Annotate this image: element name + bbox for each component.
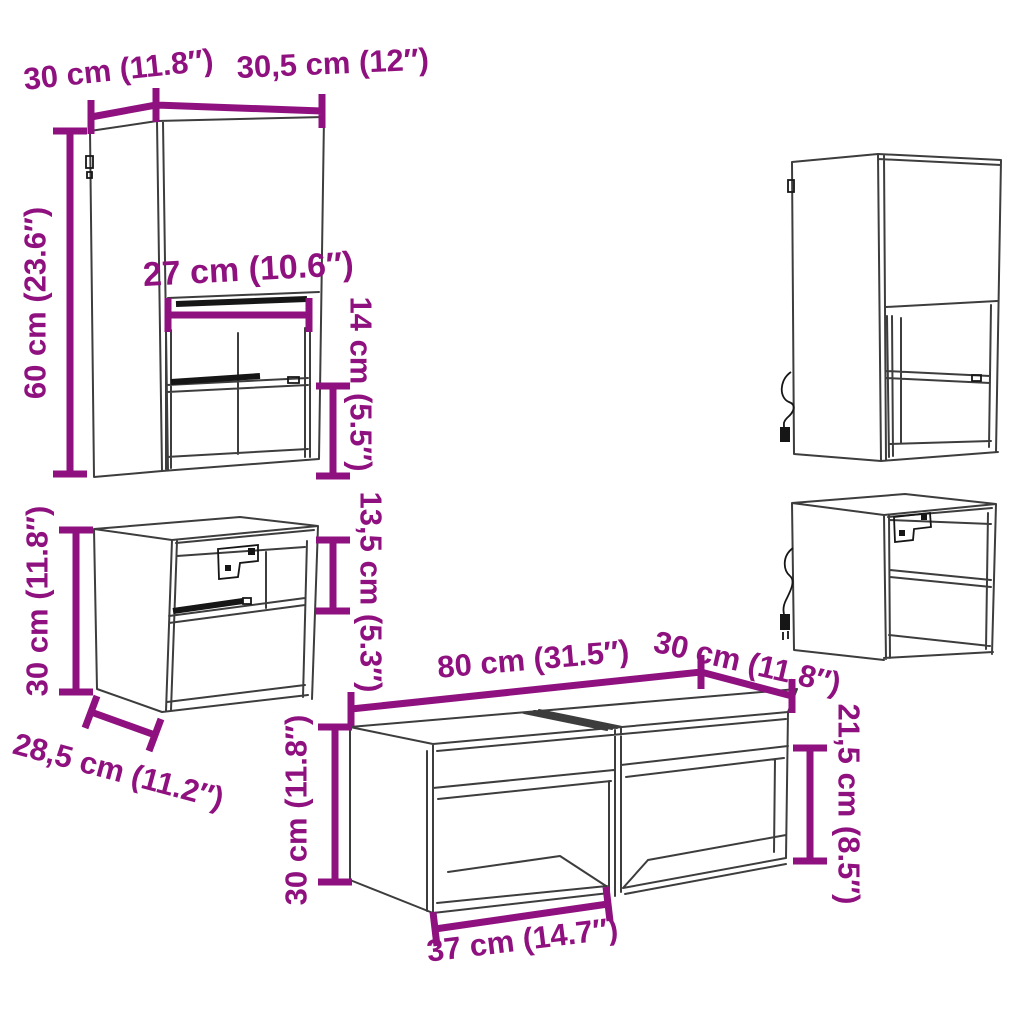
dim-label-bench-side-height: 21,5 cm (8.5″) — [832, 704, 865, 905]
small-wall-cabinet-right — [780, 494, 996, 660]
dim-line-21-5cm — [793, 748, 827, 861]
led-strip-icon — [173, 601, 243, 611]
dimension-lines — [53, 88, 827, 946]
dim-label-small-height: 30 cm (11.8″) — [22, 506, 55, 697]
dim-label-tall-opening-height: 14 cm (5.5″) — [344, 296, 377, 471]
dimension-diagram: 30 cm (11.8″) 30,5 cm (12″) 60 cm (23.6″… — [0, 0, 1024, 1024]
dim-line-60cm — [53, 131, 87, 474]
dim-label-tall-height: 60 cm (23.6″) — [20, 207, 53, 399]
dim-line-top-cabinet — [91, 88, 322, 134]
furniture-line-art — [0, 0, 1024, 1024]
tall-wall-cabinet-left — [86, 117, 324, 477]
dim-label-small-opening-height: 13,5 cm (5.3″) — [354, 492, 387, 693]
small-wall-cabinet-left — [94, 517, 318, 712]
power-plug-icon — [780, 427, 790, 442]
dim-line-bench-30cm — [318, 727, 352, 882]
tv-bench — [350, 689, 797, 913]
dim-line-28-5cm — [85, 696, 161, 751]
power-plug-icon — [780, 614, 790, 630]
dim-line-13-5cm — [316, 540, 350, 611]
dim-label-bench-height: 30 cm (11.8″) — [281, 715, 314, 906]
tall-wall-cabinet-right — [780, 154, 1001, 461]
dim-line-30cm-small — [59, 530, 93, 692]
